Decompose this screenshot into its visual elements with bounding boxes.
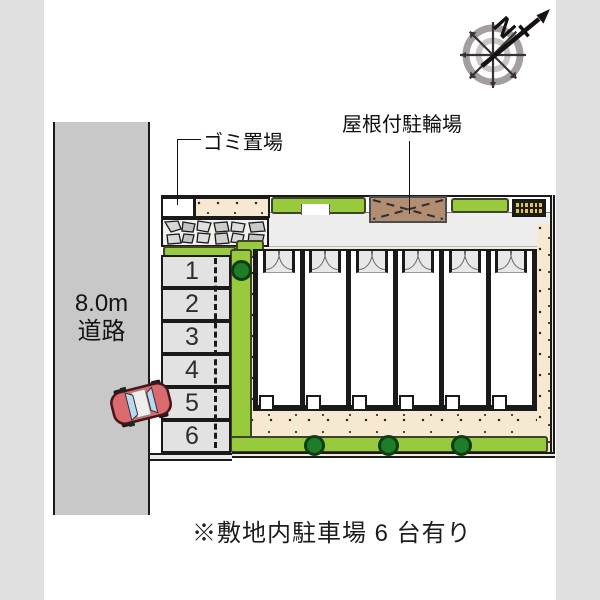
door-swing-arc (371, 251, 385, 270)
unit-entrance (263, 251, 295, 273)
unit (253, 251, 300, 411)
garbage-label: ゴミ置場 (203, 126, 283, 155)
garbage-area (161, 197, 195, 218)
unit-entrance (495, 251, 527, 273)
parking-stall: 2 (161, 288, 231, 321)
unit-step (492, 395, 507, 411)
car-icon (108, 377, 178, 429)
bike-shed (369, 196, 447, 223)
page-margin-right (556, 0, 600, 600)
garbage-leader-line (177, 139, 178, 205)
stall-number: 1 (163, 257, 199, 286)
parking-footer-strip (150, 453, 232, 461)
unit-step (306, 395, 321, 411)
site-border-right (550, 195, 555, 458)
walkway-edge-line (268, 246, 550, 247)
parking-stall: 1 (161, 255, 231, 288)
unit-step (445, 395, 460, 411)
drainage-grate (512, 199, 546, 217)
door-swing-arc (417, 251, 431, 270)
door-swing-arc (324, 251, 338, 270)
unit (393, 251, 440, 411)
compass-icon: N (446, 2, 560, 106)
unit-step (352, 395, 367, 411)
grass-top-right (451, 198, 509, 213)
bike-shed-label: 屋根付駐輪場 (342, 108, 462, 137)
grass-notch (301, 204, 330, 215)
stall-number: 2 (163, 290, 199, 319)
bike-shed-roof-marks (371, 198, 445, 221)
unit-entrance (449, 251, 481, 273)
tree-icon (231, 260, 252, 281)
unit (486, 251, 538, 411)
door-swing-arc (510, 251, 524, 270)
parking-stall: 3 (161, 321, 231, 354)
door-swing-arc (278, 251, 292, 270)
unit-entrance (402, 251, 434, 273)
road-name-text: 道路 (55, 318, 148, 346)
building (253, 249, 537, 411)
stall-number: 3 (163, 323, 199, 352)
site-note: ※敷地内駐車場 6 台有り (192, 513, 472, 548)
tree-icon (304, 435, 325, 456)
stall-dashed-divider (214, 258, 217, 448)
tree-icon (378, 435, 399, 456)
road-label: 8.0m 道路 (55, 290, 148, 346)
bike-shed-leader-line (409, 141, 410, 214)
page-margin-left (0, 0, 44, 600)
unit (300, 251, 347, 411)
garbage-leader-line (177, 139, 201, 140)
unit (346, 251, 393, 411)
unit-step (259, 395, 274, 411)
tree-icon (451, 435, 472, 456)
unit-entrance (309, 251, 341, 273)
site-plan-page: 8.0m 道路 (0, 0, 600, 600)
road: 8.0m 道路 (53, 122, 150, 515)
planter-top-strip (194, 197, 270, 218)
unit (439, 251, 486, 411)
unit-step (399, 395, 414, 411)
door-swing-arc (464, 251, 478, 270)
unit-entrance (356, 251, 388, 273)
yard-ground-right (537, 224, 550, 452)
road-width-text: 8.0m (55, 290, 148, 318)
